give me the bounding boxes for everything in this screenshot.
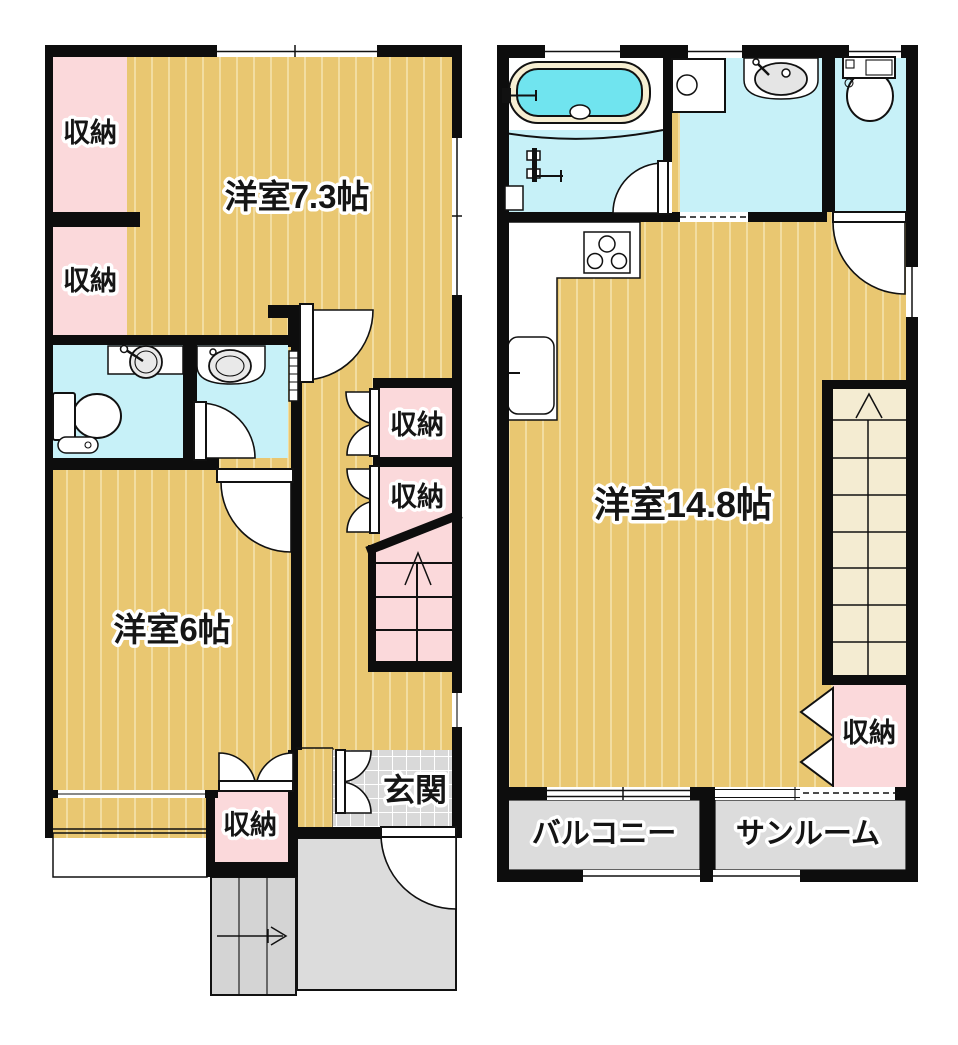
washbasin-icon — [197, 346, 265, 384]
window-top — [217, 45, 377, 57]
veranda-step-lower — [53, 833, 207, 877]
room-label-western-room-7-3: 洋室7.3帖 — [225, 178, 370, 215]
room-label-sunroom: サンルーム — [736, 818, 880, 850]
room-label-closet-b: 収納 — [63, 265, 117, 296]
window-right-small — [452, 693, 462, 727]
window-room6-bottom — [58, 790, 205, 798]
toilet2-icon — [843, 57, 895, 121]
room-label-western-room-14-8: 洋室14.8帖 — [594, 484, 772, 525]
shower-drain — [505, 186, 523, 210]
opening-closet-sunroom-dashed — [800, 787, 900, 800]
opening-sunroom — [715, 787, 800, 800]
room-label-closet-r1: 収納 — [390, 409, 444, 440]
sliding-door-icon — [289, 351, 298, 401]
room-label-closet-2f: 収納 — [842, 717, 896, 748]
floorplan-canvas: 収納 収納 洋室7.3帖 収納 収納 洋室6帖 収納 玄関 — [0, 0, 958, 1045]
room-label-balcony: バルコニー — [532, 818, 676, 850]
room-label-closet-a: 収納 — [63, 117, 117, 148]
room-label-entrance: 玄関 — [383, 772, 447, 808]
room-label-western-room-6: 洋室6帖 — [113, 611, 230, 648]
window-right-wall — [906, 267, 918, 317]
hand-basin-icon — [108, 346, 183, 379]
opening-washroom-dashed — [680, 212, 748, 222]
washbasin2-icon — [744, 58, 818, 99]
window-balcony — [547, 787, 690, 800]
floor2-plan: 洋室14.8帖 収納 バルコニー サンルーム — [497, 45, 918, 882]
stove-icon — [584, 232, 630, 273]
window-sunroom-bottom — [713, 870, 800, 882]
floorplan-drawing: 収納 収納 洋室7.3帖 収納 収納 洋室6帖 収納 玄関 — [0, 0, 958, 1045]
window-bath-top — [545, 45, 620, 58]
bathtub-icon — [502, 62, 650, 123]
window-washroom-top — [688, 45, 742, 58]
outside-stairs — [211, 877, 296, 995]
room-label-closet-r2: 収納 — [390, 481, 444, 512]
window-right-large — [452, 138, 462, 295]
window-balcony-bottom — [583, 870, 700, 882]
washing-machine-icon — [672, 59, 725, 112]
entrance-step-boards — [296, 748, 333, 827]
room-label-closet-bottom: 収納 — [223, 809, 277, 840]
floor1-plan: 収納 収納 洋室7.3帖 収納 収納 洋室6帖 収納 玄関 — [45, 45, 462, 995]
